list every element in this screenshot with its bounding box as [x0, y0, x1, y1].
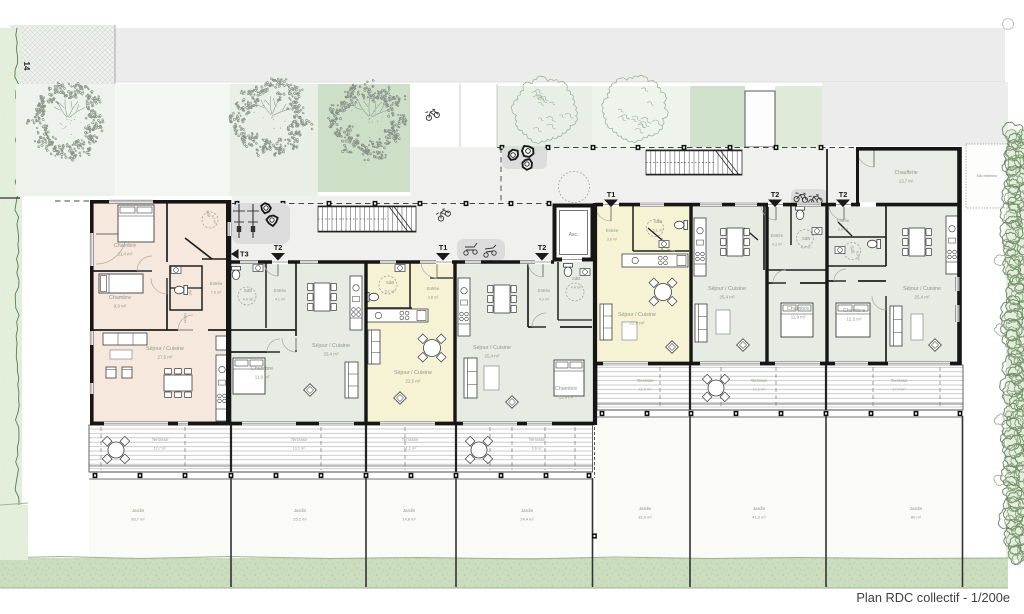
svg-text:Chambre: Chambre [251, 366, 273, 372]
svg-text:Séjour / Cuisine: Séjour / Cuisine [708, 286, 746, 292]
svg-text:Séjour / Cuisine: Séjour / Cuisine [312, 343, 350, 349]
svg-text:Terrasse: Terrasse [891, 378, 908, 383]
svg-text:41,3 m²: 41,3 m² [752, 515, 766, 520]
svg-text:Jardin: Jardin [753, 506, 766, 511]
svg-text:Séjour / Cuisine: Séjour / Cuisine [146, 346, 184, 352]
svg-text:Jardin: Jardin [639, 506, 652, 511]
svg-text:Séjour / Cuisine: Séjour / Cuisine [394, 370, 432, 376]
svg-text:Chambre: Chambre [787, 306, 809, 312]
svg-text:Entrée: Entrée [837, 218, 850, 223]
svg-text:T2: T2 [839, 190, 848, 199]
svg-text:25,4 m²: 25,4 m² [720, 295, 735, 300]
svg-text:11,1 m²: 11,1 m² [404, 447, 417, 451]
svg-text:SdB: SdB [802, 236, 810, 241]
svg-text:13,1 m²: 13,1 m² [293, 447, 307, 451]
svg-text:5,1 m²: 5,1 m² [385, 290, 396, 294]
svg-text:Cellier: Cellier [183, 313, 187, 324]
svg-text:3,8 m²: 3,8 m² [428, 296, 439, 300]
svg-text:4,1 m²: 4,1 m² [275, 298, 286, 302]
svg-text:7,6 m²: 7,6 m² [211, 291, 222, 295]
svg-text:Entrée: Entrée [771, 233, 784, 238]
svg-text:17,4 m²: 17,4 m² [893, 388, 907, 392]
svg-text:32,4 m²: 32,4 m² [638, 515, 652, 520]
svg-text:14,8 m²: 14,8 m² [402, 517, 416, 522]
svg-text:25,2 m²: 25,2 m² [293, 517, 307, 522]
svg-text:11,9 m²: 11,9 m² [791, 315, 806, 320]
svg-text:Chambre: Chambre [555, 386, 577, 392]
svg-text:11,2 m²: 11,2 m² [639, 388, 652, 392]
svg-text:SdB: SdB [572, 276, 580, 281]
svg-text:T1: T1 [607, 190, 616, 199]
svg-text:Terrasse: Terrasse [291, 437, 308, 442]
svg-text:Chambre: Chambre [109, 295, 131, 301]
svg-text:Terrasse: Terrasse [751, 378, 768, 383]
svg-text:T2: T2 [538, 243, 547, 252]
svg-text:Chambre: Chambre [843, 308, 865, 314]
svg-text:11,4 m²: 11,4 m² [118, 252, 133, 257]
svg-text:9,3 m²: 9,3 m² [114, 304, 127, 309]
svg-text:14: 14 [22, 62, 31, 71]
svg-text:Jardin: Jardin [403, 508, 416, 513]
svg-text:Entrée: Entrée [538, 288, 551, 293]
svg-text:Terrasse: Terrasse [152, 437, 169, 442]
svg-text:3,4 m²: 3,4 m² [838, 228, 849, 232]
svg-text:Entrée: Entrée [210, 281, 223, 286]
svg-text:3,8 m²: 3,8 m² [607, 238, 618, 242]
svg-text:4,3 m²: 4,3 m² [539, 298, 550, 302]
svg-text:SdB: SdB [244, 288, 252, 293]
svg-text:4,4 m²: 4,4 m² [571, 286, 582, 290]
svg-text:27,5 m²: 27,5 m² [158, 355, 173, 360]
svg-text:Séjour / Cuisine: Séjour / Cuisine [473, 345, 511, 351]
svg-text:86,7 m²: 86,7 m² [131, 517, 145, 522]
svg-text:12,5 m²: 12,5 m² [847, 317, 862, 322]
svg-text:Jardin: Jardin [910, 506, 923, 511]
svg-text:Asc.: Asc. [569, 232, 579, 238]
svg-text:T2: T2 [274, 243, 283, 252]
svg-text:12,7 m²: 12,7 m² [154, 447, 168, 451]
svg-text:SdB: SdB [386, 280, 394, 285]
svg-text:Jardin: Jardin [132, 508, 145, 513]
svg-text:4,4 m²: 4,4 m² [243, 298, 254, 302]
svg-text:Silo extérieur: Silo extérieur [977, 174, 999, 178]
svg-text:25,4 m²: 25,4 m² [915, 295, 930, 300]
svg-text:Terrasse: Terrasse [637, 378, 654, 383]
svg-text:22,5 m²: 22,5 m² [406, 379, 421, 384]
svg-text:Chambre: Chambre [114, 243, 136, 249]
svg-text:Entrée: Entrée [606, 228, 619, 233]
svg-text:11,9 m²: 11,9 m² [559, 395, 574, 400]
svg-text:Entrée: Entrée [274, 288, 287, 293]
svg-text:T2: T2 [771, 190, 780, 199]
svg-text:24,4 m²: 24,4 m² [520, 517, 534, 522]
svg-text:25,4 m²: 25,4 m² [485, 354, 500, 359]
svg-text:25,4 m²: 25,4 m² [324, 352, 339, 357]
svg-text:T1: T1 [439, 243, 448, 252]
svg-text:Plan RDC collectif - 1/200e: Plan RDC collectif - 1/200e [856, 590, 1010, 605]
svg-text:Jardin: Jardin [294, 508, 307, 513]
svg-text:T3: T3 [240, 250, 249, 259]
svg-text:9,6 m²: 9,6 m² [532, 447, 543, 451]
svg-text:Terrasse: Terrasse [529, 437, 546, 442]
svg-text:4,4 m²: 4,4 m² [801, 246, 812, 250]
svg-text:3,1 m²: 3,1 m² [653, 229, 664, 233]
svg-text:Jardin: Jardin [521, 508, 534, 513]
svg-text:22,9 m²: 22,9 m² [630, 321, 645, 326]
svg-text:4,3 m²: 4,3 m² [772, 243, 783, 247]
svg-text:Séjour / Cuisine: Séjour / Cuisine [903, 286, 941, 292]
svg-text:Entrée: Entrée [427, 286, 440, 291]
svg-text:Terrasse: Terrasse [402, 437, 419, 442]
svg-text:Séjour / Cuisine: Séjour / Cuisine [618, 312, 656, 318]
svg-text:Chaufferie: Chaufferie [895, 170, 918, 176]
svg-text:11,9 m²: 11,9 m² [255, 375, 270, 380]
svg-text:SdB: SdB [654, 219, 662, 224]
svg-text:80 m²: 80 m² [911, 515, 922, 520]
svg-text:WC: WC [188, 290, 192, 296]
svg-text:17,1 m²: 17,1 m² [753, 388, 767, 392]
svg-text:13,7 m²: 13,7 m² [899, 179, 914, 184]
